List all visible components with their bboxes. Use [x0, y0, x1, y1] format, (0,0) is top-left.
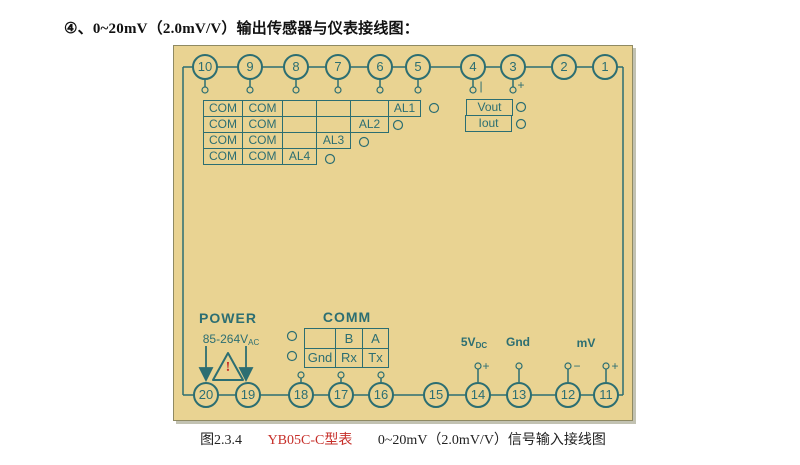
alarm-row-1: COM COM AL1	[203, 100, 421, 117]
terminal-1: 1	[592, 54, 618, 80]
terminal-2: 2	[551, 54, 577, 80]
comm-cell-rx: Rx	[335, 348, 363, 368]
alarm-cell: COM	[242, 132, 283, 149]
alarm-cell-al1: AL1	[388, 100, 421, 117]
section-title: ④、0~20mV（2.0mV/V）输出传感器与仪表接线图：	[64, 17, 419, 38]
terminal-14: 14	[465, 382, 491, 408]
wiring-panel: 10 9 8 7 6 5 4 3 2 1 20 19 18 17 16 15 1…	[173, 45, 633, 421]
alarm-cell	[282, 132, 317, 149]
caption-model: YB05C-C型表	[268, 433, 353, 448]
power-voltage-label: 85-264VAC	[184, 332, 278, 347]
terminal-10: 10	[192, 54, 218, 80]
comm-cell-a: A	[362, 328, 389, 349]
terminal-16: 16	[368, 382, 394, 408]
terminal-15: 15	[423, 382, 449, 408]
terminal-19: 19	[235, 382, 261, 408]
screw-terminal-icons-top	[202, 87, 516, 93]
alarm-cell: COM	[203, 116, 243, 133]
caption-figure-number: 图2.3.4	[200, 433, 242, 448]
dc-subscript: DC	[476, 341, 488, 350]
terminal-5: 5	[405, 54, 431, 80]
terminal-6: 6	[367, 54, 393, 80]
terminal-3: 3	[500, 54, 526, 80]
alarm-cell: COM	[203, 100, 243, 117]
alarm-cell	[350, 100, 389, 117]
screw-stems-signal	[478, 369, 606, 382]
alarm-cell-al2: AL2	[350, 116, 389, 133]
comm-label: COMM	[312, 309, 382, 325]
manual-page: ④、0~20mV（2.0mV/V）输出传感器与仪表接线图：	[0, 0, 800, 465]
alarm-row-3: COM COM AL3	[203, 132, 351, 149]
power-label: POWER	[190, 310, 266, 326]
vout-cell: Vout	[466, 99, 513, 116]
warning-exclamation: !	[221, 360, 235, 376]
iout-cell: Iout	[465, 115, 512, 132]
sign-terminal-11: +	[607, 359, 623, 373]
alarm-cell-al4: AL4	[282, 148, 317, 165]
comm-row-2: Gnd Rx Tx	[304, 348, 389, 368]
comm-cell	[304, 328, 336, 349]
comm-row-1: B A	[304, 328, 389, 349]
alarm-cell	[282, 100, 317, 117]
sign-terminal-12: −	[569, 359, 585, 373]
alarm-row-2: COM COM AL2	[203, 116, 389, 133]
comm-cell-tx: Tx	[362, 348, 389, 368]
sign-terminal-3: +	[513, 78, 529, 92]
alarm-cell-al3: AL3	[316, 132, 351, 149]
terminal-17: 17	[328, 382, 354, 408]
ac-subscript: AC	[248, 338, 259, 347]
terminal-20: 20	[193, 382, 219, 408]
alarm-cell: COM	[203, 132, 243, 149]
label-mv: mV	[564, 336, 608, 350]
label-5vdc: 5VDC	[452, 335, 496, 350]
alarm-cell: COM	[203, 148, 243, 165]
figure-caption: 图2.3.4 YB05C-C型表 0~20mV（2.0mV/V）信号输入接线图	[173, 429, 633, 449]
terminal-11: 11	[593, 382, 619, 408]
sign-terminal-4: |	[473, 79, 489, 93]
caption-description: 0~20mV（2.0mV/V）信号输入接线图	[378, 433, 606, 448]
terminal-4: 4	[460, 54, 486, 80]
terminal-13: 13	[506, 382, 532, 408]
terminal-9: 9	[237, 54, 263, 80]
alarm-cell: COM	[242, 100, 283, 117]
comm-cell-b: B	[335, 328, 363, 349]
alarm-cell	[282, 116, 317, 133]
output-contact-icons	[517, 103, 526, 129]
screw-stems-top	[205, 80, 513, 87]
alarm-row-4: COM COM AL4	[203, 148, 317, 165]
sign-terminal-14: +	[478, 359, 494, 373]
alarm-cell: COM	[242, 148, 283, 165]
comm-cell-gnd: Gnd	[304, 348, 336, 368]
comm-contact-icons	[288, 332, 297, 361]
alarm-cell: COM	[242, 116, 283, 133]
terminal-12: 12	[555, 382, 581, 408]
terminal-7: 7	[325, 54, 351, 80]
label-gnd: Gnd	[496, 335, 540, 349]
terminal-18: 18	[288, 382, 314, 408]
alarm-cell	[316, 100, 351, 117]
alarm-cell	[316, 116, 351, 133]
terminal-8: 8	[283, 54, 309, 80]
